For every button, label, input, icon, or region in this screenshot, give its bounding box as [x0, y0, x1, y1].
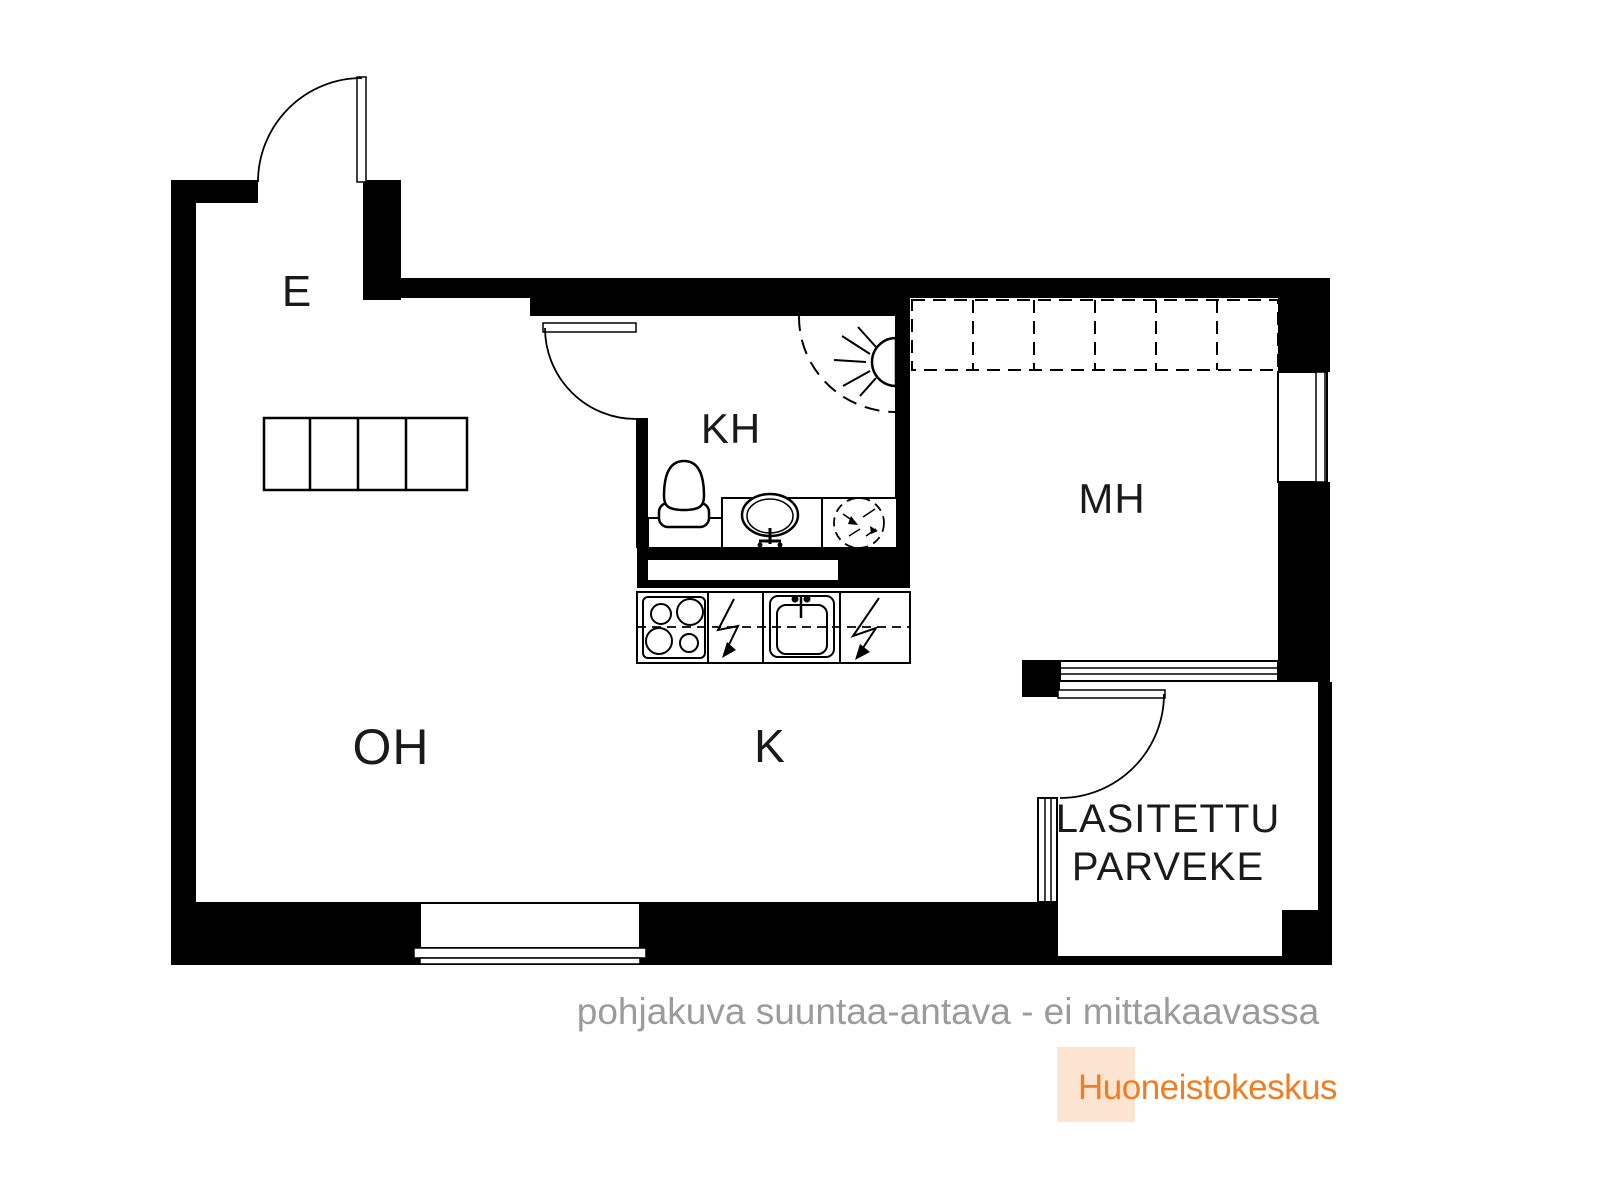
bathroom-left-wall	[636, 418, 648, 548]
balcony-window-top	[1060, 661, 1278, 681]
balcony-door	[1058, 690, 1165, 798]
window-frame	[1038, 798, 1057, 902]
entry-label: E	[282, 267, 312, 316]
hall-wardrobe	[264, 418, 467, 490]
balcony-corner-post	[1022, 660, 1060, 697]
faucet-handle	[792, 596, 799, 603]
window-sill	[420, 958, 640, 964]
door-leaf	[357, 77, 366, 182]
balcony-label-line1: LASITETTU	[1056, 797, 1281, 841]
window-frame	[1060, 661, 1278, 681]
bolt-arrowhead	[855, 644, 870, 660]
bedroom-window	[1278, 372, 1327, 482]
faucet-handle	[758, 543, 763, 548]
shower-ray	[842, 336, 870, 354]
door-swing-arc	[258, 78, 362, 182]
bolt-arrowhead	[722, 642, 736, 658]
lightning-bolt-icon	[853, 598, 879, 660]
living-room-label: OH	[353, 719, 430, 775]
right-outer-wall-upper	[1278, 298, 1330, 372]
balcony-right-wall	[1318, 682, 1332, 910]
shower-ray	[858, 327, 876, 347]
entry-top-wall-right	[363, 180, 401, 203]
balcony-bottom-right-wall	[1282, 910, 1332, 965]
shower-icon	[799, 316, 896, 412]
window-glass	[1316, 372, 1325, 482]
burner	[651, 604, 671, 624]
right-outer-wall-mid	[1278, 482, 1330, 682]
footer: pohjakuva suuntaa-antava - ei mittakaava…	[577, 991, 1337, 1122]
top-outer-wall	[363, 278, 1330, 298]
door-swing-arc	[545, 328, 636, 419]
floor-plan: E KH MH OH K LASITETTU PARVEKE pohjakuva…	[0, 0, 1600, 1200]
burner	[680, 634, 698, 652]
floor-plan-page: E KH MH OH K LASITETTU PARVEKE pohjakuva…	[0, 0, 1600, 1200]
bathroom-fixtures	[648, 316, 897, 548]
toilet-bowl	[664, 461, 704, 510]
bedroom-label: MH	[1078, 475, 1145, 522]
lightning-bolt-icon	[718, 599, 738, 658]
door-swing-arc	[1060, 694, 1164, 798]
shower-ray	[843, 371, 870, 386]
faucet-handle	[804, 596, 811, 603]
door-leaf	[543, 323, 636, 332]
bathroom-door	[543, 323, 636, 419]
faucet-handle	[778, 543, 783, 548]
wardrobe-outline	[264, 418, 467, 490]
left-outer-wall	[171, 180, 196, 965]
shower-ray	[860, 378, 876, 396]
toilet-icon	[648, 461, 722, 548]
bathroom-label: KH	[701, 405, 761, 452]
balcony-window-left	[1038, 798, 1057, 902]
bathroom-top-wall	[530, 298, 910, 316]
balcony-bottom-rail	[1058, 956, 1282, 965]
burner	[646, 628, 672, 654]
window-recess	[420, 903, 640, 948]
washbasin-icon	[722, 494, 822, 548]
entrance-door	[258, 77, 366, 182]
bedroom-wardrobe	[912, 300, 1278, 370]
bathroom-bottom-wall-slot	[648, 560, 838, 580]
brand-logo-text: Huoneistokeskus	[1078, 1068, 1337, 1107]
kitchen-counter	[637, 592, 910, 663]
disclaimer-text: pohjakuva suuntaa-antava - ei mittakaava…	[577, 991, 1320, 1032]
living-room-window	[414, 903, 646, 964]
entry-top-wall-left	[171, 180, 258, 203]
door-leaf	[1058, 690, 1165, 698]
shower-ray	[834, 360, 866, 362]
window-glass	[414, 948, 646, 958]
burner	[677, 599, 703, 625]
kitchen-label: K	[754, 720, 786, 772]
balcony-label-line2: PARVEKE	[1072, 845, 1264, 889]
washing-machine-reservation-icon	[822, 498, 897, 548]
